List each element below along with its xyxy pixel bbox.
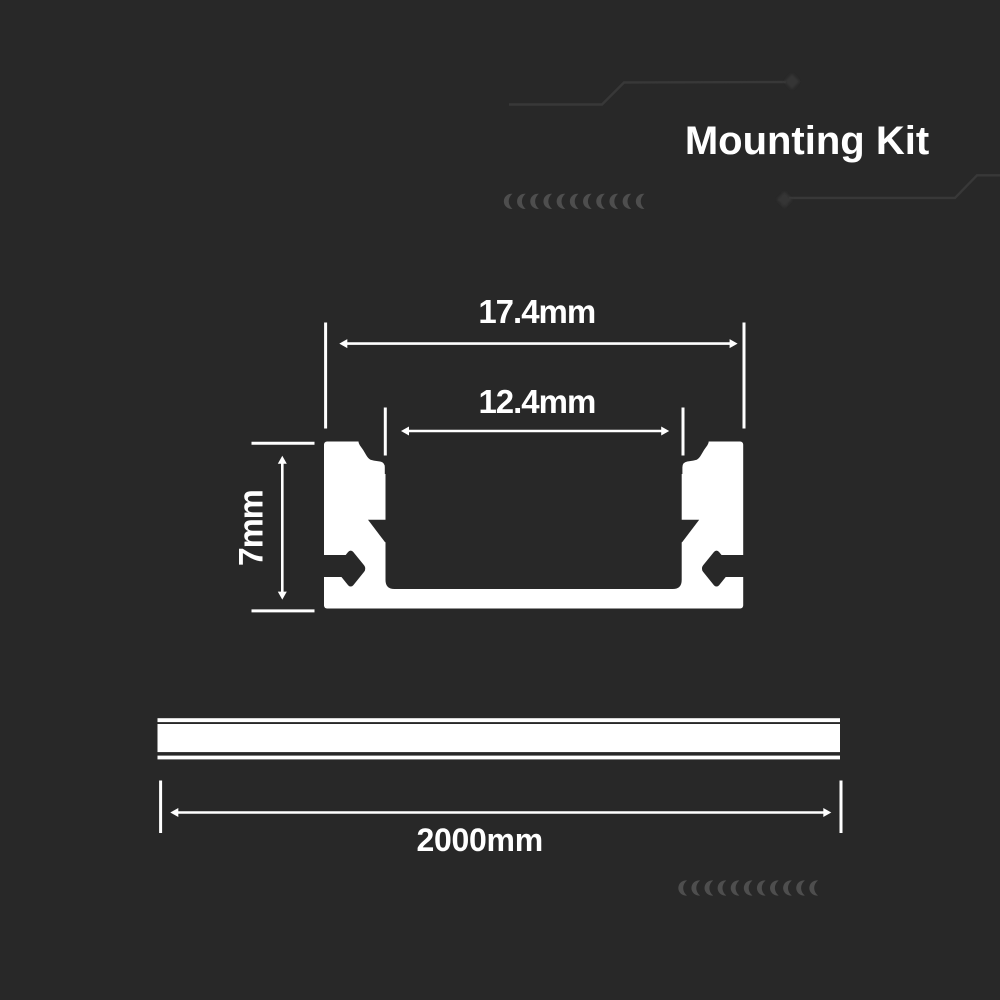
- svg-text:7mm: 7mm: [233, 490, 271, 566]
- svg-text:Mounting Kit: Mounting Kit: [685, 119, 929, 163]
- svg-text:12.4mm: 12.4mm: [478, 383, 595, 420]
- svg-text:2000mm: 2000mm: [417, 822, 543, 858]
- svg-text:17.4mm: 17.4mm: [478, 293, 595, 330]
